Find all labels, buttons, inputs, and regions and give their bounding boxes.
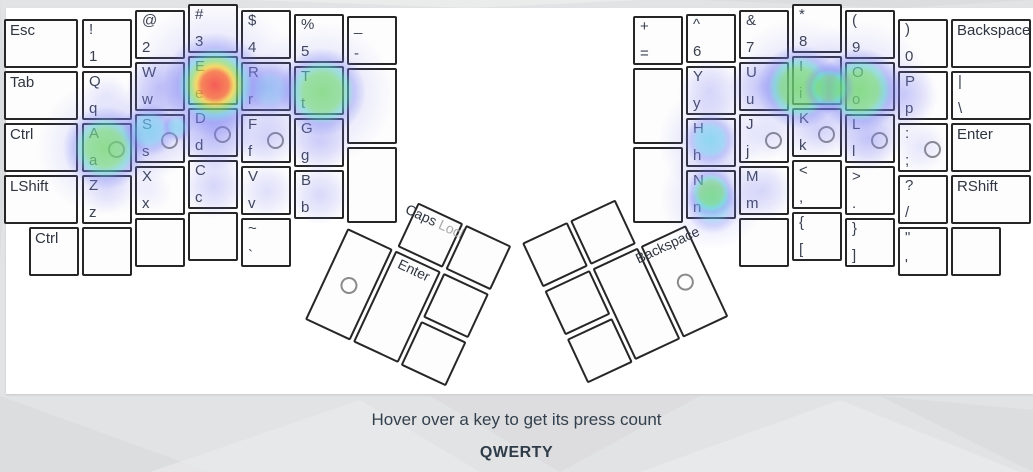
key-base-legend: f: [248, 143, 252, 160]
key-semicolon[interactable]: :;: [898, 123, 948, 172]
key-z[interactable]: Zz: [82, 175, 132, 224]
key-shift-legend: T: [301, 68, 310, 85]
key-shift-legend: B: [301, 172, 311, 189]
key-base-legend: m: [746, 195, 759, 212]
key-base-legend: d: [195, 137, 203, 154]
key-label: Backspace: [633, 223, 702, 266]
key-base-legend: 8: [799, 33, 807, 50]
key-base-legend: k: [799, 137, 807, 154]
key-a[interactable]: Aa: [82, 123, 132, 172]
key-shift-legend: %: [301, 16, 314, 33]
key-shift-legend: H: [693, 120, 704, 137]
key-d[interactable]: Dd: [188, 108, 238, 157]
key-base-legend: x: [142, 195, 150, 212]
key-c[interactable]: Cc: [188, 160, 238, 209]
key-lbracket[interactable]: {[: [792, 212, 842, 261]
key-enter[interactable]: Enter: [951, 123, 1031, 172]
key-base-legend: 6: [693, 43, 701, 60]
key-base-legend: z: [89, 204, 97, 221]
key-m[interactable]: Mm: [739, 166, 789, 215]
key-base-legend: l: [852, 143, 855, 160]
key-shift-legend: }: [852, 220, 857, 237]
key-shift-legend: Z: [89, 177, 98, 194]
key-y[interactable]: Yy: [686, 66, 736, 115]
key-base-legend: /: [905, 204, 909, 221]
key-minus[interactable]: _-: [347, 16, 397, 65]
homing-ring-icon: [161, 132, 178, 149]
key-0[interactable]: )0: [898, 19, 948, 68]
key-shift-legend: $: [248, 12, 256, 29]
key-k[interactable]: Kk: [792, 108, 842, 157]
homing-ring-icon: [818, 126, 835, 143]
key-equals[interactable]: +=: [633, 16, 683, 65]
key-base-legend: 5: [301, 43, 309, 60]
key-base-legend: g: [301, 147, 309, 164]
key-shift-legend: F: [248, 116, 257, 133]
key-shift-legend: A: [89, 125, 99, 142]
homing-ring-icon: [871, 132, 888, 149]
key-shift-legend: G: [301, 120, 313, 137]
key-shift-legend: ): [905, 21, 910, 38]
key-shift-legend: ^: [693, 16, 700, 33]
key-q[interactable]: Qq: [82, 71, 132, 120]
key-base-legend: o: [852, 91, 860, 108]
key-label: Tab: [10, 74, 34, 91]
key-label: Backspace: [957, 22, 1030, 39]
layout-name-label: QWERTY: [0, 444, 1033, 462]
key-base-legend: a: [89, 152, 97, 169]
key-shift-legend: ~: [248, 220, 257, 237]
key-b[interactable]: Bb: [294, 170, 344, 219]
key-base-legend: r: [248, 91, 253, 108]
key-ltall2[interactable]: [347, 147, 397, 223]
key-base-legend: v: [248, 195, 256, 212]
key-base-legend: [: [799, 241, 803, 258]
key-shift-legend: #: [195, 6, 203, 23]
key-rbracket[interactable]: }]: [845, 218, 895, 267]
key-backslash[interactable]: |\: [951, 71, 1031, 120]
key-base-legend: 2: [142, 39, 150, 56]
key-r[interactable]: Rr: [241, 62, 291, 111]
homing-ring-icon: [765, 132, 782, 149]
key-base-legend: j: [746, 143, 749, 160]
key-shift-legend: >: [852, 168, 861, 185]
key-label: Ctrl: [10, 126, 33, 143]
key-shift-legend: _: [354, 18, 362, 35]
key-6[interactable]: ^6: [686, 14, 736, 63]
key-shift-legend: N: [693, 172, 704, 189]
key-esc[interactable]: Esc: [4, 19, 78, 68]
key-e[interactable]: Ee: [188, 56, 238, 105]
key-shift-legend: D: [195, 110, 206, 127]
key-shift-legend: +: [640, 18, 649, 35]
key-u[interactable]: Uu: [739, 62, 789, 111]
key-base-legend: ;: [905, 152, 909, 169]
key-base-legend: t: [301, 95, 305, 112]
key-ltall1[interactable]: [347, 68, 397, 144]
key-shift-legend: U: [746, 64, 757, 81]
key-base-legend: ,: [799, 189, 803, 206]
key-3[interactable]: #3: [188, 4, 238, 53]
key-shift-legend: C: [195, 162, 206, 179]
key-base-legend: .: [852, 195, 856, 212]
key-s[interactable]: Ss: [135, 114, 185, 163]
key-f[interactable]: Ff: [241, 114, 291, 163]
key-shift-legend: W: [142, 64, 156, 81]
key-label: Ctrl: [35, 230, 58, 247]
key-base-legend: h: [693, 147, 701, 164]
key-comma[interactable]: <,: [792, 160, 842, 209]
homing-ring-icon: [214, 126, 231, 143]
key-9[interactable]: (9: [845, 10, 895, 59]
key-label: Esc: [10, 22, 35, 39]
key-base-legend: e: [195, 85, 203, 102]
key-base-legend: p: [905, 100, 913, 117]
key-4[interactable]: $4: [241, 10, 291, 59]
key-base-legend: b: [301, 199, 309, 216]
key-7[interactable]: &7: [739, 10, 789, 59]
key-slash[interactable]: ?/: [898, 175, 948, 224]
key-backspace[interactable]: Backspace: [951, 19, 1031, 68]
key-lshift[interactable]: LShift: [4, 175, 78, 224]
key-base-legend: -: [354, 45, 359, 62]
key-base-legend: c: [195, 189, 203, 206]
key-shift-legend: |: [958, 73, 962, 90]
key-rblank2[interactable]: [951, 227, 1001, 276]
key-g[interactable]: Gg: [294, 118, 344, 167]
key-w[interactable]: Ww: [135, 62, 185, 111]
key-base-legend: \: [958, 100, 962, 117]
key-shift-legend: (: [852, 12, 857, 29]
key-base-legend: ]: [852, 247, 856, 264]
key-base-legend: q: [89, 100, 97, 117]
key-shift-legend: L: [852, 116, 860, 133]
key-j[interactable]: Jj: [739, 114, 789, 163]
key-base-legend: =: [640, 45, 649, 62]
homing-ring-icon: [338, 274, 361, 297]
key-base-legend: s: [142, 143, 150, 160]
key-shift-legend: Y: [693, 68, 703, 85]
footer: Hover over a key to get its press count …: [0, 394, 1033, 462]
key-base-legend: u: [746, 91, 754, 108]
key-o[interactable]: Oo: [845, 62, 895, 111]
key-base-legend: 0: [905, 48, 913, 65]
key-shift-legend: *: [799, 6, 805, 23]
key-base-legend: 4: [248, 39, 256, 56]
key-tab[interactable]: Tab: [4, 71, 78, 120]
key-base-legend: i: [799, 85, 802, 102]
key-shift-legend: @: [142, 12, 157, 29]
key-rtall2[interactable]: [633, 147, 683, 223]
key-base-legend: y: [693, 95, 701, 112]
key-shift-legend: :: [905, 125, 909, 142]
key-shift-legend: {: [799, 214, 804, 231]
homing-ring-icon: [267, 132, 284, 149]
key-shift-legend: R: [248, 64, 259, 81]
key-shift-legend: P: [905, 73, 915, 90]
key-label: RShift: [957, 178, 998, 195]
keyboard-heatmap: Caps LockEnter Backspace EscTabCtrlLShif…: [0, 0, 1033, 394]
key-lctrl2[interactable]: Ctrl: [29, 227, 79, 276]
key-n[interactable]: Nn: [686, 170, 736, 219]
key-shift-legend: X: [142, 168, 152, 185]
homing-ring-icon: [674, 270, 697, 293]
key-8[interactable]: *8: [792, 4, 842, 53]
key-rtall1[interactable]: [633, 68, 683, 144]
key-shift-legend: I: [799, 58, 803, 75]
key-shift-legend: <: [799, 162, 808, 179]
key-p[interactable]: Pp: [898, 71, 948, 120]
key-lctrl[interactable]: Ctrl: [4, 123, 78, 172]
key-l[interactable]: Ll: [845, 114, 895, 163]
key-label: Enter: [957, 126, 993, 143]
hover-hint-text: Hover over a key to get its press count: [0, 410, 1033, 430]
key-base-legend: ': [905, 256, 908, 273]
key-base-legend: 3: [195, 33, 203, 50]
key-shift-legend: Q: [89, 73, 101, 90]
key-5[interactable]: %5: [294, 14, 344, 63]
key-1[interactable]: !1: [82, 19, 132, 68]
key-label: LShift: [10, 178, 48, 195]
homing-ring-icon: [924, 141, 941, 158]
key-shift-legend: ?: [905, 177, 913, 194]
key-shift-legend: V: [248, 168, 258, 185]
key-x[interactable]: Xx: [135, 166, 185, 215]
key-base-legend: 9: [852, 39, 860, 56]
key-lblank2[interactable]: [135, 218, 185, 267]
key-base-legend: n: [693, 199, 701, 216]
key-rblank1[interactable]: [739, 218, 789, 267]
key-shift-legend: S: [142, 116, 152, 133]
key-v[interactable]: Vv: [241, 166, 291, 215]
key-shift-legend: K: [799, 110, 809, 127]
key-base-legend: 1: [89, 48, 97, 65]
key-lblank3[interactable]: [188, 212, 238, 261]
key-shift-legend: O: [852, 64, 864, 81]
key-quote[interactable]: "': [898, 227, 948, 276]
key-2[interactable]: @2: [135, 10, 185, 59]
homing-ring-icon: [108, 141, 125, 158]
key-i[interactable]: Ii: [792, 56, 842, 105]
key-rshift[interactable]: RShift: [951, 175, 1031, 224]
key-period[interactable]: >.: [845, 166, 895, 215]
key-base-legend: 7: [746, 39, 754, 56]
key-h[interactable]: Hh: [686, 118, 736, 167]
key-grave[interactable]: ~`: [241, 218, 291, 267]
key-lblank1[interactable]: [82, 227, 132, 276]
key-shift-legend: E: [195, 58, 205, 75]
key-t[interactable]: Tt: [294, 66, 344, 115]
key-shift-legend: ": [905, 229, 910, 246]
key-base-legend: w: [142, 91, 153, 108]
key-shift-legend: &: [746, 12, 756, 29]
key-shift-legend: J: [746, 116, 754, 133]
key-shift-legend: !: [89, 21, 93, 38]
key-shift-legend: M: [746, 168, 759, 185]
key-base-legend: `: [248, 247, 253, 264]
